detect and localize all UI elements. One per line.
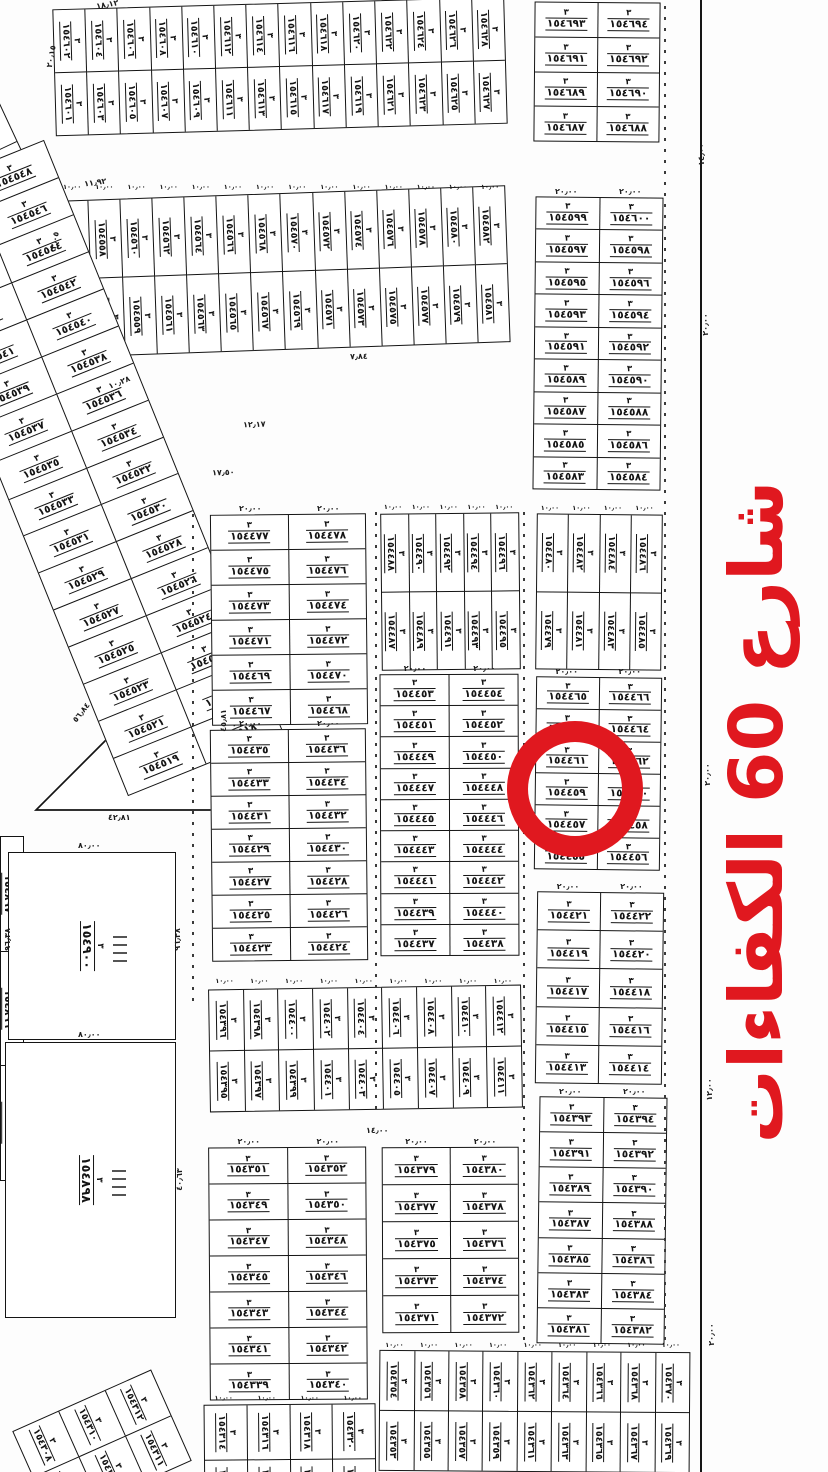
block-number: ٣ <box>141 313 150 319</box>
block-number: ٣ <box>246 1263 251 1272</box>
block-number: ٣ <box>401 1015 410 1020</box>
plot-cell: ٣١٥٤٣٦٦ <box>587 1352 621 1411</box>
plot-cell: ٣١٥٤٤٧١ <box>212 620 290 655</box>
plot-cell: ٣١٥٤٤٧٥ <box>211 550 289 585</box>
plot-number: ١٥٤٣٥٣ <box>386 1421 398 1460</box>
block-number: ٣ <box>674 1440 683 1445</box>
plot-number: ١٥٤٤٩١ <box>440 611 452 650</box>
plot-cell: ٣١٥٤٣٤٣ <box>210 1292 289 1328</box>
plot-cell: ٣١٥٤٤٤٥ <box>381 800 450 830</box>
block-number: ٣ <box>479 550 488 555</box>
block-number: ٣ <box>324 1190 329 1199</box>
block-number: ٣ <box>631 1245 636 1254</box>
plot-number: ١٥٤٤٢٥ <box>230 909 273 922</box>
plot-cell: ٣١٥٤٤٧٣ <box>212 585 290 620</box>
block-number: ٣ <box>414 1303 419 1312</box>
block-number: ٣ <box>553 628 562 633</box>
plot-number: ١٥٤٦٠٤ <box>91 21 104 60</box>
plot-cell: ٣١٥٤٣٧٢ <box>451 1296 518 1332</box>
block-number: ٣ <box>467 1438 476 1443</box>
plot-number: ١٥٤٣٥١ <box>227 1164 270 1177</box>
plot-cell: ٣١٥٤٥٦٧ <box>251 271 285 350</box>
block-number: ٣ <box>325 867 330 876</box>
plot-number: ١٥٤٤٦٥ <box>546 691 589 705</box>
block-number: ٣ <box>640 1380 649 1385</box>
block-number: ٣ <box>232 33 241 38</box>
plot-number: ١٥٤٤٧٩ <box>541 611 553 650</box>
block-number: ٣ <box>332 1016 341 1021</box>
plot-cell: ٣١٥٤٦٠١ <box>55 71 88 135</box>
plot-cell: ٣١٥٤٦١٢ <box>214 5 247 68</box>
plot-number: ١٥٤٣٤٤ <box>306 1307 349 1320</box>
block-number: ٣ <box>248 867 253 876</box>
plot-cell: ٣١٥٤٥٧٤ <box>345 191 379 269</box>
block-number: ٣ <box>324 735 329 744</box>
block-number: ٣ <box>414 1266 419 1275</box>
plot-cell: ٣١٥٤٤٢٣ <box>213 928 291 961</box>
plot-block-rb: ٣١٥٤٤٨٦٣١٥٤٤٨٥٣١٥٤٤٨٤٣١٥٤٤٨٣٣١٥٤٤٨٢٣١٥٤٤… <box>535 513 663 670</box>
plot-cell: ٣١٥٤٣٥٢ <box>288 1147 366 1183</box>
block-number: ٣ <box>507 549 516 554</box>
plot-cell: ٣١٥٤٤٨٢ <box>568 515 599 592</box>
plot-number: ١٥٤٣٤٠ <box>307 1379 350 1392</box>
plot-cell: ٣١٥٤٤٣٢ <box>289 795 366 828</box>
plot-cell: ٣١٥٤٤٢٨ <box>290 861 367 894</box>
block-number: ٣ <box>263 1078 272 1083</box>
plot-cell: ٣١٥٤٣٦٧ <box>621 1412 655 1472</box>
dimension-label: ٢٠٫٠٠ <box>555 187 578 196</box>
plot-cell: ٣١٥٤٦٩٣ <box>535 2 598 36</box>
block-number: ٣ <box>482 866 487 875</box>
plot-number: ١٥٤٥٦٥ <box>225 293 238 332</box>
plot-cell: ٣١٥٤٥٧٠ <box>281 193 315 271</box>
block-number: ٣ <box>168 35 177 40</box>
dimension-label: ١٠٫٠٠ <box>447 0 465 1</box>
block-number: ٣ <box>395 92 404 97</box>
plot-number: ١٥٤٥٨٠ <box>447 207 460 246</box>
plot-cell: ٣١٥٤٣٩٣ <box>540 1097 604 1132</box>
plot-number: ١٥٤٦٢٥ <box>447 74 460 113</box>
block-number: ٣ <box>565 202 570 211</box>
plot-number: ١٥٤٤٢٩ <box>229 843 272 856</box>
plot-number: ١٥٤٥٨٥ <box>544 438 587 451</box>
plot-number: ١٥٤٤٩٠ <box>412 533 424 572</box>
plot-cell: ٣١٥٤٤٧٩ <box>536 591 567 669</box>
plot-cell: ٣١٥٤٥٨٩ <box>534 360 598 392</box>
block-number: ٣ <box>200 34 209 39</box>
plot-cell: ٣١٥٤٥٨٠ <box>441 187 475 265</box>
block-number: ٣ <box>298 1077 307 1082</box>
plot-number: ١٥٤٤١٩ <box>547 947 590 961</box>
block-number: ٣ <box>248 900 253 909</box>
block-number: ٣ <box>425 28 434 33</box>
plot-number: ١٥٤٦٩٣ <box>545 17 588 30</box>
plot-cell: ٣١٥٤٣٤٧ <box>210 1220 289 1256</box>
block-number: ٣ <box>436 1014 445 1019</box>
block-number: ٣ <box>331 228 340 234</box>
plot-cell: ٣١٥٤٣٤٦ <box>288 1255 366 1291</box>
dimension-label: ٢٠٫٠٠ <box>556 667 579 676</box>
dimension-label: ١٢٫٠٠ <box>705 1078 714 1101</box>
plot-number: ١٥٤٣٧٠ <box>662 1363 674 1402</box>
plot-number: ١٥٤٤٥٣ <box>393 688 435 701</box>
block-number: ٣ <box>363 227 372 233</box>
plot-cell: ٣١٥٤٤٠٢ <box>313 988 348 1049</box>
block-number: ٣ <box>412 835 417 844</box>
block-number: ٣ <box>565 682 570 691</box>
plot-cell: ٣١٥٤٤٣٤ <box>289 762 366 795</box>
plot-cell: ٣١٥٤٦١٧ <box>313 64 346 128</box>
block-number: ٣ <box>628 300 633 309</box>
dimension-label: ٢٠٫٠٠ <box>557 882 580 891</box>
dimension-label: ١٢٫١٧ <box>243 420 266 430</box>
block-number: ٣ <box>398 1438 407 1443</box>
plot-number: ١٥٤٣٠٨ <box>29 1426 56 1466</box>
block-number: ٣ <box>554 550 563 555</box>
plot-cell: ٣١٥٤٦٩٤ <box>598 3 660 37</box>
block-number: ٣ <box>170 98 179 103</box>
dimension-label: ١٠٫٠٠ <box>350 0 368 1</box>
plot-number: ١٥٤٤١٦ <box>609 1024 652 1038</box>
plot-number: ١٥٤٤٦٧ <box>230 705 273 718</box>
plot-number: ١٥٤٥٨٤ <box>607 471 650 484</box>
plot-cell: ٣١٥٤٤١٥ <box>536 1007 599 1045</box>
plot-number: ١٥٤٤٤٢ <box>463 875 505 888</box>
block-number: ٣ <box>502 1379 511 1384</box>
block-number: ٣ <box>566 1315 571 1324</box>
block-number: ٣ <box>203 232 212 238</box>
plot-cell: ٣١٥٤٦٠٧ <box>152 69 185 133</box>
plot-number: ١٥٤٣٢٠ <box>343 1412 355 1451</box>
plot-number: ١٥٤٣٧٧ <box>395 1201 437 1214</box>
block-number: ٣ <box>136 36 145 41</box>
plot-number: ١٥٤٣١٣ <box>216 1467 228 1472</box>
plot-number: ١٥٤٤٢٧ <box>229 876 272 889</box>
block-number: ٣ <box>238 309 247 315</box>
plot-number: ١٥٤٤٧٧ <box>228 530 271 543</box>
block-number: ٣ <box>632 1104 637 1113</box>
block-number: ٣ <box>617 551 626 556</box>
dimension-label: ١٠٫٠٠ <box>344 1394 362 1402</box>
plot-cell: ٣١٥٤٦٢٥ <box>441 61 474 125</box>
plot-cell: ٣١٥٤٣٤١ <box>210 1328 289 1364</box>
dimension-label: ١٠٫٠٠ <box>253 0 271 1</box>
block-number: ٣ <box>628 235 633 244</box>
plot-cell: ٣١٥٤٥٩٦ <box>599 263 662 295</box>
plot-number: ١٥٤٣٦٧ <box>627 1423 639 1462</box>
block-number: ٣ <box>563 43 568 52</box>
plot-cell: ٣١٥٤٦٩١ <box>535 37 598 71</box>
dimension-label: ١٠٫٠٠ <box>572 504 590 512</box>
block-number: ٣ <box>470 1014 479 1019</box>
plot-cell: ٣١٥٤٦٩٠ <box>597 73 659 107</box>
plot-number: ١٥٤٥٨١ <box>482 284 495 323</box>
plot-cell: ٣١٥٤٥٧١ <box>315 269 349 348</box>
block-number: ٣ <box>414 1229 419 1238</box>
block-number: ٣ <box>536 1379 545 1384</box>
plot-cell: ٣١٥٤٣٦٢ <box>518 1352 552 1411</box>
plot-cell: ٣١٥٤٣٨٢ <box>601 1309 664 1344</box>
plot-cell: ٣١٥٤٣٦٥ <box>586 1411 620 1471</box>
plot-number: ١٥٤٣٤٧ <box>227 1236 270 1249</box>
plot-number: ١٥٤٤٠٧ <box>425 1058 438 1097</box>
block-number: ٣ <box>626 843 631 852</box>
plot-cell: ٣١٥٤٣٦١ <box>517 1411 551 1471</box>
plot-number: ١٥٤٥٨٩ <box>545 373 588 386</box>
plot-number: ١٥٤٣١٤ <box>215 1413 227 1452</box>
plot-cell: ٣١٥٤٤٣٧ <box>381 925 450 955</box>
plot-cell: ٣١٥٤٤٧٧ <box>211 515 289 550</box>
plot-cell: ٣١٥٤٤١٢ <box>486 986 521 1047</box>
plot-number: ١٥٤٣٥٥ <box>420 1421 432 1460</box>
plot-number: ١٥٤٤٢٦ <box>307 908 350 921</box>
plot-number: ١٥٤٦٠٥ <box>125 83 138 122</box>
block-number: ٣ <box>247 556 252 565</box>
dimension-label: ١٠٫٠٠ <box>224 183 242 191</box>
plot-number: ١٥٤٣٦١ <box>524 1422 536 1461</box>
plot-number: ١٥٤٤٤٨ <box>463 782 505 795</box>
block-number: ٣ <box>563 397 568 406</box>
plot-cell: ٣١٥٤٤٥٣ <box>381 675 450 705</box>
plot-cell: ٣١٥٤٦٩٢ <box>598 38 660 72</box>
block-number: ٣ <box>266 96 275 101</box>
plot-cell: ٣١٥٤٣٩٠ <box>603 1168 666 1203</box>
plot-number: ١٥٤٣٩٨ <box>250 1000 263 1039</box>
plot-number: ١٥٤٤٨١ <box>572 611 584 650</box>
block-number: ٣ <box>452 550 461 555</box>
plot-number: ١٥٤٤٢٢ <box>611 910 654 924</box>
plot-number: ١٥٤٤٩٤ <box>467 533 479 572</box>
block-number: ٣ <box>262 1017 271 1022</box>
plot-number: ١٥٤٤١٧ <box>547 985 590 999</box>
plot-cell: ٣١٥٤٥٨٥ <box>534 424 598 456</box>
plot-cell: ٣١٥٤٥٦٨ <box>249 194 283 272</box>
plot-cell: ٣١٥٤٤٢٦ <box>290 894 367 927</box>
plot-number: ١٥٤٦٢٠ <box>349 13 362 52</box>
block-number: ٣ <box>398 304 407 310</box>
plot-number: ١٥٤٦١١ <box>222 80 235 119</box>
plot-number: ١٥٤٤٠٥ <box>390 1059 403 1098</box>
plot-number: ١٥٤٤١١ <box>494 1057 507 1096</box>
plot-cell: ٣١٥٤٦٢٦ <box>440 0 473 61</box>
plot-number: ١٥٤٥٦٠ <box>126 218 139 257</box>
subdivision-plat-map[interactable]: ٣ ١٥٤٩٠١ شارع 60 الكفاءات ٣١٥٤٦٢٨٣١٥٤٦٢٧… <box>0 0 828 1472</box>
plot-cell: ٣١٥٤٥٨٦ <box>597 425 660 457</box>
highlight-circle <box>507 721 643 857</box>
plot-cell: ٣١٥٤٤٢١ <box>538 892 601 930</box>
dimension-label: ١٠٫٠٠ <box>301 1394 319 1402</box>
plot-number: ١٥٤٤٠٩ <box>459 1058 472 1097</box>
plot-number: ١٥٤٦٩٢ <box>607 53 650 66</box>
plot-number: ١٥٤٤٠٣ <box>355 1060 368 1099</box>
plot-number: ١٥٤٣١٩ <box>344 1466 356 1472</box>
plot-cell: ٣١٥٤٣٧٣ <box>383 1259 451 1295</box>
plot-cell: ٣١٥٤٦١٩ <box>345 63 378 127</box>
dimension-label: ١٠٫٠٠ <box>412 503 430 511</box>
plot-number: ١٥٤٣٩٣ <box>550 1112 593 1126</box>
plot-number: ١٥٤٣٥٩ <box>489 1422 501 1461</box>
block-number: ٣ <box>247 801 252 810</box>
dimension-ticks <box>523 512 525 1347</box>
plot-cell: ٣١٥٤٥٧٦ <box>377 190 411 268</box>
block-number: ٣ <box>566 938 571 947</box>
plot-number: ١٥٤٥٦٧ <box>257 292 270 331</box>
plot-block-corner-bl: ٣١٥٤٣١٢٣١٥٤٣١١٣١٥٤٣١٠٣١٥٤٣٠٩٣١٥٤٣٠٨٣١٥٤٣… <box>12 1369 192 1472</box>
plot-cell: ٣١٥٤٦٠٤ <box>85 9 118 72</box>
plot-cell: ٣١٥٤٦٨٨ <box>597 107 659 141</box>
plot-number: ١٥٤٦٠١ <box>61 84 74 123</box>
block-number: ٣ <box>536 1439 545 1444</box>
block-number: ٣ <box>491 222 500 228</box>
plot-cell: ٣١٥٤٤٣٥ <box>211 730 289 763</box>
plot-number: ١٥٤٣٩٠ <box>613 1183 656 1197</box>
block-number: ٣ <box>627 365 632 374</box>
block-number: ٣ <box>564 300 569 309</box>
plot-cell: ٣١٥٤٤٧٨ <box>288 514 365 549</box>
plot-cell: ٣١٥٤٥٧٣ <box>348 268 382 347</box>
plot-number: ١٥٤٤٨٣ <box>604 611 616 650</box>
block-number: ٣ <box>264 33 273 38</box>
large-plot-p154898: ٣١٥٤٨٩٨ <box>5 1042 176 1318</box>
dimension-label: ٢٠٫٠٠ <box>559 1087 582 1096</box>
plot-cell: ٣١٥٤٣٥٣ <box>380 1410 414 1470</box>
block-number: ٣ <box>247 1371 252 1380</box>
plot-number: ١٥٤٣٤٨ <box>306 1235 349 1248</box>
plot-number: ١٥٤٦١٧ <box>318 77 331 116</box>
block-number: ٣ <box>482 1155 487 1164</box>
plot-number: ١٥٤٣٨٣ <box>548 1288 591 1302</box>
plot-number: ١٥٤٣٩٧ <box>251 1061 264 1100</box>
block-number: ٣ <box>630 1315 635 1324</box>
block-number: ٣ <box>585 551 594 556</box>
plot-cell: ٣١٥٤٤١٨ <box>600 969 662 1007</box>
block-number: ٣ <box>626 398 631 407</box>
dimension-label: ١٠٫٠٠ <box>215 977 233 985</box>
plot-cell: ٣١٥٤٣١٩ <box>333 1458 375 1472</box>
plot-cell: ٣١٥٤٥٨١ <box>476 263 510 342</box>
plot-number: ١٥٤٤٩٣ <box>468 611 480 650</box>
plot-block-t2: ٣١٥٤٥٨٢٣١٥٤٥٨١٣١٥٤٥٨٠٣١٥٤٥٧٩٣١٥٤٥٧٨٣١٥٤٥… <box>55 185 510 358</box>
block-number: ٣ <box>628 683 633 692</box>
plot-number: ١٥٤٥١٩ <box>139 752 183 780</box>
dimension-label: ٢٠٫٠٠ <box>619 667 642 676</box>
plot-number: ١٥٤٣٩٦ <box>216 1001 229 1040</box>
block-number: ٣ <box>482 1229 487 1238</box>
block-number: ٣ <box>568 1209 573 1218</box>
plot-number: ١٥٤٦٠٣ <box>93 84 106 123</box>
plot-number: ١٥٤٣٧٤ <box>463 1275 505 1288</box>
plot-cell: ٣١٥٤٦٢١ <box>377 62 410 126</box>
plot-number: ١٥٤٣٤٢ <box>307 1343 350 1356</box>
plot-number: ١٥٤٥٨٧ <box>544 406 587 419</box>
plot-cell: ٣١٥٤٣٨٩ <box>539 1168 603 1203</box>
dimension-label: ١٠٫٠٠ <box>635 504 653 512</box>
block-number: ٣ <box>494 300 503 306</box>
plot-number: ١٥٤٤٣٤ <box>306 776 349 789</box>
plot-number: ١٥٤٤١٢ <box>493 996 506 1035</box>
plot-number: ١٥٤٦٠٧ <box>157 82 170 121</box>
plot-number: ١٥٤٤٤٩ <box>394 751 436 764</box>
plot-cell: ٣١٥٤٤٨١ <box>567 591 598 669</box>
dimension-label: ١٠٫٠٠ <box>320 977 338 985</box>
block-number: ٣ <box>626 430 631 439</box>
block-number: ٣ <box>302 307 311 313</box>
plot-number: ١٥٤٤٨٥ <box>635 612 647 651</box>
block-number: ٣ <box>605 1439 614 1444</box>
plot-cell: ٣١٥٤٤٠١ <box>314 1048 349 1110</box>
plot-cell: ٣١٥٤٣٦٣ <box>552 1411 586 1471</box>
dimension-label: ١٠٫٠٠ <box>467 503 485 511</box>
block-number: ٣ <box>639 1440 648 1445</box>
plot-number: ١٥٤٦١٨ <box>316 14 329 53</box>
plot-number: ١٥٤٣٥٧ <box>455 1422 467 1461</box>
plot-cell: ٣١٥٤٤٣٠ <box>289 828 366 861</box>
plot-cell: ٣١٥٤٤٨٩ <box>410 591 437 669</box>
plot-cell: ٣١٥٤٣٩٥ <box>210 1050 245 1112</box>
block-number: ٣ <box>331 94 340 99</box>
plot-cell: ٣١٥٤٤٠٤ <box>348 988 383 1049</box>
plot-cell: ٣١٥٤٣٦٨ <box>621 1353 655 1412</box>
block-number: ٣ <box>413 867 418 876</box>
plot-cell: ٣١٥٤٣٧٦ <box>451 1222 518 1258</box>
block-number: ٣ <box>566 900 571 909</box>
plot-cell: ٣١٥٤٥٩٤ <box>599 295 662 327</box>
plot-cell: ٣١٥٤٤٢٩ <box>212 829 290 862</box>
plot-number: ١٥٤٤١٨ <box>610 986 653 1000</box>
block-number: ٣ <box>105 100 114 105</box>
plot-cell: ٣١٥٤٤٠٦ <box>382 987 417 1048</box>
plot-number: ١٥٤٦٠٢ <box>59 21 72 60</box>
plot-block-m2: ٣١٥٤٣٨٠٣١٥٤٣٧٩٣١٥٤٣٧٨٣١٥٤٣٧٧٣١٥٤٣٧٦٣١٥٤٣… <box>382 1147 520 1333</box>
dimension-label: ١٠٫٠٠ <box>250 977 268 985</box>
dimension-label: ١٠٫٠٠ <box>440 503 458 511</box>
plot-cell: ٣١٥٤٤٢٠ <box>600 931 662 969</box>
plot-cell: ٣١٥٤٣٤٤ <box>289 1291 367 1327</box>
plot-cell: ٣١٥٤٥٩٣ <box>535 295 599 327</box>
plot-cell: ٣١٥٤٣١٣ <box>205 1459 247 1472</box>
street-name-label: شارع 60 الكفاءات <box>714 480 800 1143</box>
dimension-label: ٧٫٨٤ <box>350 352 368 362</box>
plot-number: ١٥٤٥٦٨ <box>254 214 267 253</box>
plot-block-l1: ٣١٥٤٤٧٨٣١٥٤٤٧٧٣١٥٤٤٧٦٣١٥٤٤٧٥٣١٥٤٤٧٤٣١٥٤٤… <box>210 513 368 726</box>
dimension-label: ١٠٫٠٠ <box>489 1341 507 1349</box>
block-number: ٣ <box>366 305 375 311</box>
block-number: ٣ <box>564 9 569 18</box>
block-number: ٣ <box>605 1379 614 1384</box>
plot-number: ١٥٤٣٦٨ <box>627 1363 639 1402</box>
plot-number: ١٥٤٦٢٧ <box>479 73 492 112</box>
plot-number: ١٥٤٦٢١ <box>383 75 396 114</box>
dimension-label: ٤٥٫٨١ <box>219 709 228 732</box>
plot-cell: ٣١٥٤٣٩٦ <box>209 990 244 1051</box>
plot-number: ١٥٤٤٠٨ <box>424 997 437 1036</box>
plot-number: ١٥٤٣٧٥ <box>395 1238 437 1251</box>
plot-number: ١٥٤٣١٧ <box>301 1467 313 1472</box>
plot-number: ١٥٤٤١٤ <box>609 1062 652 1076</box>
plot-number: ١٥٤٣٦٥ <box>593 1423 605 1462</box>
block-number: ٣ <box>627 1054 632 1063</box>
block-number: ٣ <box>568 1174 573 1183</box>
block-number: ٣ <box>648 551 657 556</box>
plot-number: ١٥٤٥٧٥ <box>385 287 398 326</box>
plot-cell: ٣١٥٤٤٩٢ <box>436 514 463 591</box>
dimension-label: ٢٠٫٠٠ <box>618 0 641 1</box>
plot-cell: ٣١٥٤٣٥١ <box>209 1148 288 1184</box>
plot-cell: ٣١٥٤٣٥٥ <box>414 1410 448 1470</box>
plot-number: ١٥٤٤٣١ <box>229 810 272 823</box>
block-number: ٣ <box>202 97 211 102</box>
block-number: ٣ <box>395 226 404 232</box>
